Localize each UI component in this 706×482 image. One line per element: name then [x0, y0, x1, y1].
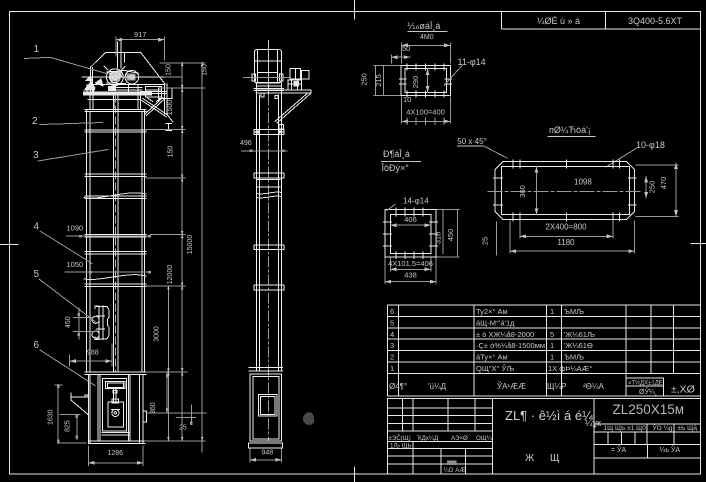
svg-text:5: 5: [550, 330, 554, 339]
svg-text:1: 1: [390, 364, 394, 373]
svg-text:1: 1: [34, 44, 40, 55]
svg-text:ҠДх¼Д: ҠДх¼Д: [417, 435, 439, 442]
svg-text:450: 450: [446, 229, 455, 242]
svg-text:11-φ14: 11-φ14: [458, 57, 486, 67]
svg-text:Щ: Щ: [550, 453, 559, 464]
svg-text:1180: 1180: [557, 238, 575, 247]
svg-text:1286: 1286: [108, 450, 124, 457]
svg-text:250: 250: [648, 181, 657, 194]
svg-text:Ø4¶°: Ø4¶°: [389, 382, 407, 391]
svg-text:25: 25: [481, 237, 490, 245]
svg-text:4X101.5=406: 4X101.5=406: [388, 259, 433, 268]
svg-text:5: 5: [390, 318, 394, 327]
svg-text:±Ь Щҋ: ±Ь Щҋ: [678, 424, 698, 432]
svg-text:14-φ14: 14-φ14: [403, 197, 429, 206]
svg-text:988: 988: [87, 350, 99, 357]
svg-text:ЪМЉ: ЪМЉ: [564, 353, 584, 362]
svg-text:1090: 1090: [67, 224, 84, 233]
svg-text:215: 215: [374, 74, 383, 87]
svg-text:3Q400-5.6ХТ: 3Q400-5.6ХТ: [628, 16, 683, 26]
svg-text:Ту2×° Ам: Ту2×° Ам: [476, 307, 508, 316]
svg-text:25: 25: [179, 425, 187, 432]
svg-text:4: 4: [390, 330, 394, 339]
svg-text:'Ж¼61Љ: 'Ж¼61Љ: [564, 330, 595, 339]
svg-text:QЩ"Х° ЎЉ: QЩ"Х° ЎЉ: [476, 364, 514, 373]
svg-text:1Х фÞ¼АÆ°: 1Х фÞ¼АÆ°: [548, 364, 592, 373]
svg-text:150: 150: [168, 146, 175, 158]
svg-text:1098: 1098: [574, 178, 592, 187]
svg-text:250: 250: [360, 73, 369, 86]
svg-text:1: 1: [550, 307, 554, 316]
svg-text:= ЎА: = ЎА: [611, 445, 626, 454]
svg-text:290: 290: [411, 76, 420, 89]
svg-text:406: 406: [404, 215, 417, 224]
svg-text:ĪòĐý×°: ĪòĐý×°: [382, 163, 410, 173]
svg-text:¼О АÆ: ¼О АÆ: [444, 467, 466, 474]
svg-text:917: 917: [134, 30, 147, 39]
svg-text:1Щ ЩЬ ±1 Щ0: 1Щ ЩЬ ±1 Щ0: [604, 425, 647, 432]
svg-text:948: 948: [262, 450, 274, 457]
svg-text:±,ХØ: ±,ХØ: [671, 384, 695, 396]
svg-text:12000: 12000: [167, 265, 174, 285]
svg-text:3: 3: [33, 150, 39, 161]
svg-text:·Ç± ò%¼å8-1500мм: ·Ç± ò%¼å8-1500мм: [476, 341, 545, 350]
svg-text:ЎО ¼g: ЎО ¼g: [653, 423, 673, 432]
svg-text:450: 450: [65, 316, 72, 328]
svg-text:150: 150: [202, 64, 209, 76]
svg-text:Đ¶áĪ¸á: Đ¶áĪ¸á: [383, 149, 410, 159]
svg-text:ZL¶ · ê½ì á é¼: ZL¶ · ê½ì á é¼: [505, 408, 593, 423]
svg-text:5: 5: [34, 269, 40, 280]
svg-text:6: 6: [390, 307, 394, 316]
svg-text:²Ѳ¼А: ²Ѳ¼А: [583, 382, 605, 391]
svg-text:360: 360: [518, 185, 527, 198]
svg-text:438: 438: [404, 271, 417, 280]
svg-text:пØ¼Ћòá'¡: пØ¼Ћòá'¡: [549, 125, 591, 135]
svg-text:2: 2: [32, 116, 38, 127]
svg-text:4: 4: [34, 222, 40, 233]
svg-text:ЪМЉ: ЪМЉ: [564, 307, 584, 316]
svg-text:Ж: Ж: [525, 453, 535, 464]
svg-text:ОЩ¼: ОЩ¼: [476, 435, 493, 442]
svg-text:¼ұк: ¼ұк: [585, 418, 601, 428]
svg-text:»Т½ДХ±1ДЕ: »Т½ДХ±1ДЕ: [628, 380, 663, 387]
svg-text:± ò ХЖ¼å8-2000: ± ò ХЖ¼å8-2000: [476, 330, 534, 339]
svg-text:1630: 1630: [48, 409, 55, 425]
svg-text:¼ØÉ ù » á: ¼ØÉ ù » á: [537, 16, 580, 26]
svg-text:6: 6: [34, 340, 40, 351]
svg-text:⅒øáĪ¸á: ⅒øáĪ¸á: [407, 21, 440, 31]
svg-text:Щ¼Р: Щ¼Р: [547, 382, 567, 391]
svg-text:825: 825: [65, 420, 72, 432]
svg-text:4Μ0: 4Μ0: [420, 34, 434, 41]
svg-text:4X100=400: 4X100=400: [406, 108, 445, 117]
svg-text:'Ж¼61Ѳ: 'Ж¼61Ѳ: [564, 341, 593, 350]
svg-text:3000: 3000: [154, 326, 161, 342]
svg-text:15000: 15000: [187, 235, 194, 255]
svg-text:'ü¼Д: 'ü¼Д: [428, 382, 447, 391]
svg-text:10: 10: [403, 95, 411, 104]
svg-text:áЩ-М°'á'1д: áЩ-М°'á'1д: [476, 318, 515, 327]
svg-text:50 x 45°: 50 x 45°: [457, 137, 486, 146]
svg-text:3: 3: [390, 341, 394, 350]
svg-text:1Љ ЩЬ: 1Љ ЩЬ: [390, 443, 412, 450]
svg-text:1: 1: [550, 353, 554, 362]
svg-text:2: 2: [390, 353, 394, 362]
svg-text:470: 470: [659, 177, 668, 190]
svg-text:ØЎ¼¸: ØЎ¼¸: [639, 387, 657, 396]
svg-text:ZL250X15м: ZL250X15м: [613, 402, 685, 417]
svg-text:1500: 1500: [167, 100, 174, 116]
svg-text:áТу×° Ам: áТу×° Ам: [476, 353, 508, 362]
svg-text:ЎА¹ÆÆ: ЎА¹ÆÆ: [497, 382, 526, 391]
svg-text:¼ь ЎА: ¼ь ЎА: [660, 445, 681, 454]
svg-text:50: 50: [402, 44, 410, 53]
svg-text:150: 150: [166, 64, 173, 76]
svg-text:496: 496: [240, 140, 252, 147]
svg-text:10-φ18: 10-φ18: [636, 140, 665, 150]
svg-text:2X400=800: 2X400=800: [545, 223, 587, 232]
svg-text:±ЭČ(Щ): ±ЭČ(Щ): [389, 435, 411, 442]
svg-text:1: 1: [550, 341, 554, 350]
svg-text:310: 310: [434, 232, 443, 245]
svg-text:360: 360: [150, 402, 157, 414]
svg-text:1050: 1050: [67, 260, 84, 269]
svg-text:АЭ×Ø: АЭ×Ø: [451, 435, 468, 442]
